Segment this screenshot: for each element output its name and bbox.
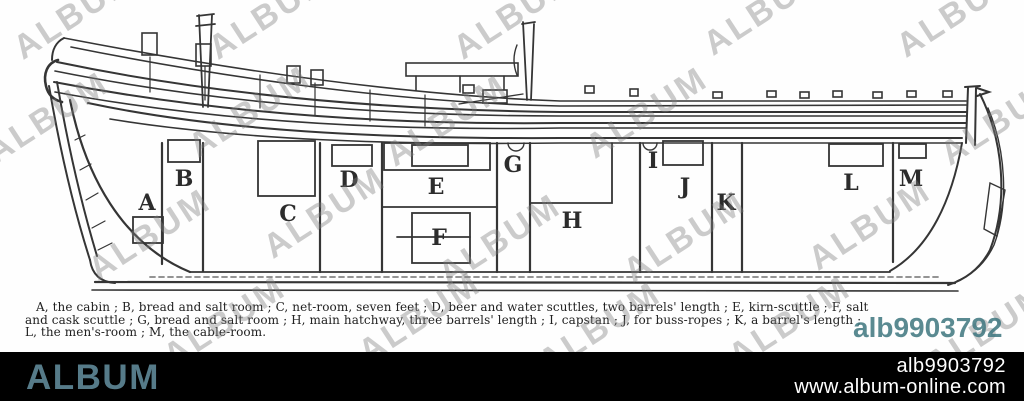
- bread-salt-box: [168, 140, 200, 162]
- footer-image-id: alb9903792: [794, 356, 1006, 377]
- ship-section-engraving: ABCDEFGHIJKLM: [0, 0, 1024, 300]
- compartment-letter: I: [648, 148, 658, 174]
- cable-room-box: [899, 144, 926, 158]
- compartment-letter: A: [137, 190, 156, 216]
- compartment-letter: B: [175, 166, 194, 192]
- deck-fittings: [142, 33, 952, 103]
- keel: [92, 272, 958, 291]
- main-hatchway: [530, 143, 612, 203]
- compartment-letter: F: [431, 225, 447, 251]
- compartment-letter: H: [562, 208, 583, 234]
- compartment-letter: J: [678, 174, 690, 200]
- kirn-scuttle-inner: [412, 145, 468, 166]
- stock-photo-page: ABCDEFGHIJKLM A, the cabin ; B, bread an…: [0, 0, 1024, 401]
- compartment-letter: D: [339, 167, 358, 193]
- capstan-box: [663, 141, 703, 165]
- compartment-letter: K: [716, 190, 736, 216]
- engraving-area: ABCDEFGHIJKLM A, the cabin ; B, bread an…: [0, 0, 1024, 352]
- compartment-letter: M: [899, 166, 923, 192]
- compartment-letter: E: [428, 174, 445, 200]
- footer-bar: ALBUM alb9903792 www.album-online.com: [0, 352, 1024, 401]
- album-logo: ALBUM: [26, 358, 160, 398]
- net-room-box: [258, 141, 315, 196]
- mens-room-box: [829, 144, 883, 166]
- image-id-overlay: alb9903792: [853, 312, 1002, 344]
- footer-website: www.album-online.com: [794, 377, 1006, 398]
- footer-right: alb9903792 www.album-online.com: [794, 356, 1006, 398]
- rail-cleats: [713, 91, 952, 98]
- cabin-box: [133, 217, 163, 243]
- compartment-letter: C: [279, 201, 297, 227]
- compartment-dividers: [162, 143, 893, 272]
- scuttle-box-d: [332, 145, 372, 166]
- compartment-letter: L: [843, 170, 858, 196]
- compartment-letter: G: [504, 152, 523, 178]
- hull-lines: [54, 38, 966, 143]
